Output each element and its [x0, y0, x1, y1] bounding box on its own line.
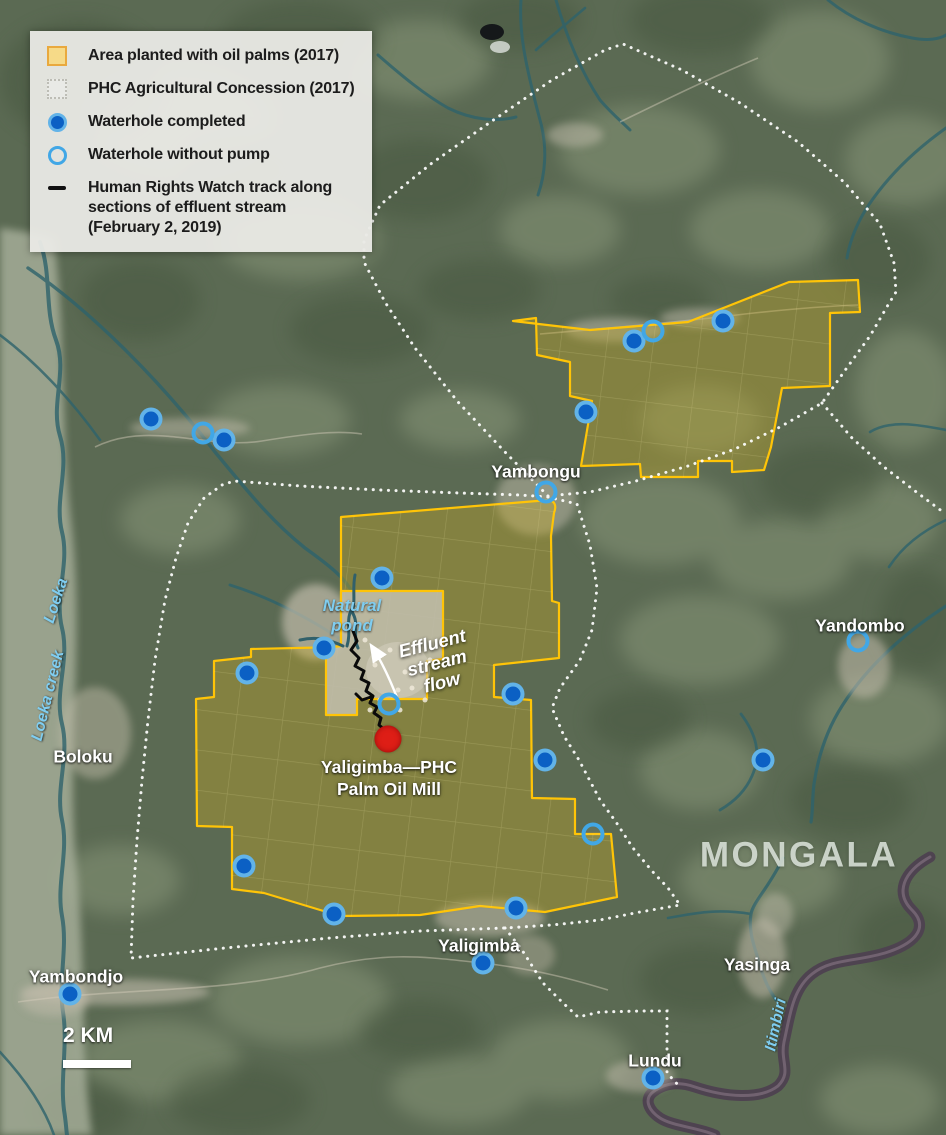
map-label: Itimbiri [762, 997, 792, 1053]
concession-icon [44, 79, 70, 99]
map-label: Yambongu [491, 462, 580, 483]
legend-item-label: Waterhole completed [88, 112, 245, 132]
legend-item-waterhole-without-pump: Waterhole without pump [44, 145, 354, 165]
map-label: Yambondjo [29, 967, 123, 988]
scale-bar [63, 1060, 131, 1068]
legend-item-label: Waterhole without pump [88, 145, 270, 165]
legend-item-waterhole-completed: Waterhole completed [44, 112, 354, 132]
waterhole-completed-marker [236, 662, 259, 685]
waterhole-without-pump-icon [44, 146, 70, 165]
waterhole-completed-marker [534, 749, 557, 772]
map-label: Loeka creek [29, 649, 70, 743]
mill-label-line1: Yaligimba—PHC [321, 757, 457, 779]
waterhole-no_pump-marker [642, 320, 665, 343]
waterhole-completed-marker [313, 637, 336, 660]
map-label: Yandombo [815, 616, 904, 637]
waterhole-completed-marker [140, 408, 163, 431]
waterhole-no_pump-marker [535, 481, 558, 504]
waterhole-completed-marker [712, 310, 735, 333]
waterhole-completed-marker [502, 683, 525, 706]
waterhole-no_pump-marker [582, 823, 605, 846]
scale-label: 2 KM [63, 1024, 113, 1048]
hrw-track-icon [44, 178, 70, 190]
map-label: Boloku [53, 747, 112, 768]
map-label: Effluentstreamflow [397, 626, 478, 701]
legend-item-oil-palm-area: Area planted with oil palms (2017) [44, 46, 354, 66]
waterhole-completed-marker [505, 897, 528, 920]
waterhole-completed-marker [371, 567, 394, 590]
waterhole-completed-marker [213, 429, 236, 452]
waterhole-completed-marker [233, 855, 256, 878]
map-label: MONGALA [700, 834, 898, 875]
legend-item-concession: PHC Agricultural Concession (2017) [44, 79, 354, 99]
map-figure: Yaligimba—PHC Palm Oil Mill 2 KM Yambong… [0, 0, 946, 1135]
waterhole-completed-marker [575, 401, 598, 424]
map-label: Loeka [41, 576, 73, 626]
legend: Area planted with oil palms (2017) PHC A… [30, 31, 372, 252]
waterhole-completed-marker [752, 749, 775, 772]
waterhole-no_pump-marker [378, 693, 401, 716]
legend-item-hrw-track: Human Rights Watch track along sections … [44, 178, 354, 238]
mill-label: Yaligimba—PHC Palm Oil Mill [321, 757, 457, 801]
legend-item-label: PHC Agricultural Concession (2017) [88, 79, 354, 99]
palm-oil-mill-marker [375, 726, 402, 753]
oil-palm-area-icon [44, 46, 70, 66]
waterhole-no_pump-marker [192, 422, 215, 445]
map-label: Yasinga [724, 955, 790, 976]
legend-item-label: Human Rights Watch track along sections … [88, 178, 332, 238]
map-label: Yaligimba [438, 936, 520, 957]
mill-label-line2: Palm Oil Mill [321, 779, 457, 801]
map-label: Naturalpond [323, 596, 382, 636]
map-label: Lundu [628, 1051, 681, 1072]
waterhole-completed-marker [323, 903, 346, 926]
legend-item-label: Area planted with oil palms (2017) [88, 46, 339, 66]
waterhole-completed-icon [44, 113, 70, 132]
